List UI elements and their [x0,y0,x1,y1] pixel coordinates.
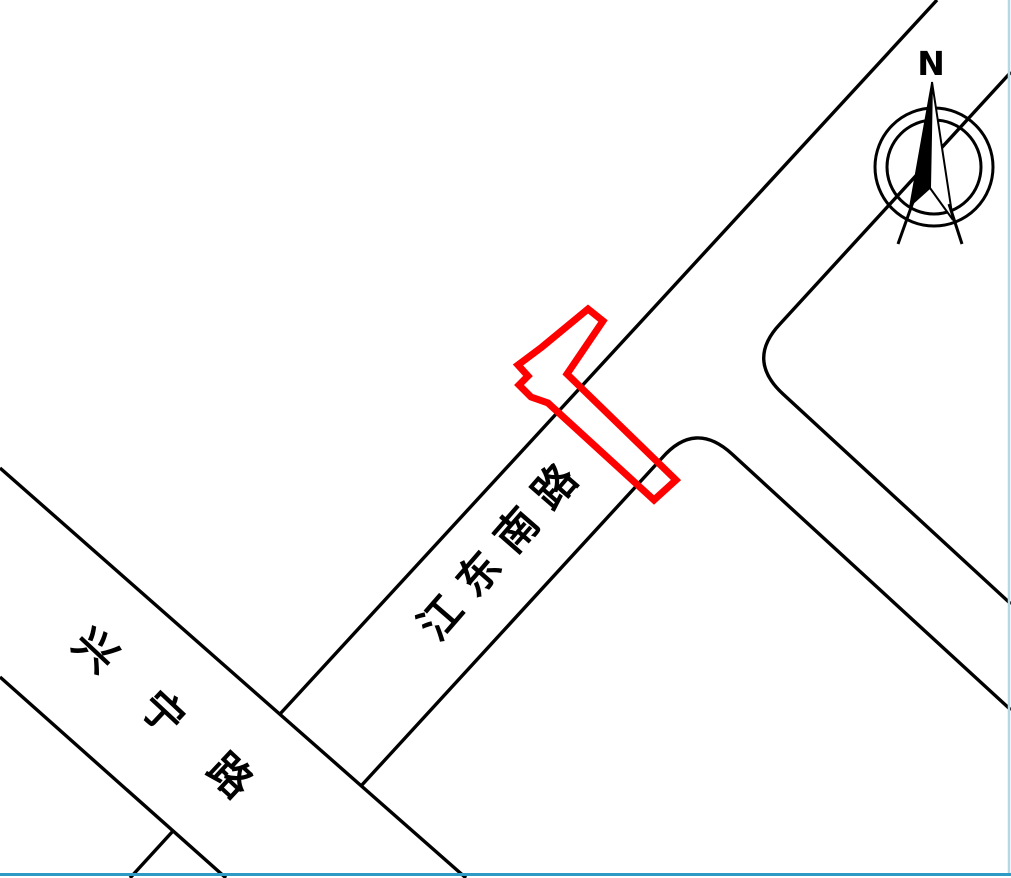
compass-needle-light-blade [930,82,953,220]
road-edge-jiangdong-se-upper-branch-ne [764,72,1011,604]
road-sketch-map: N 江东南路 兴宁路 [0,0,1011,878]
road-edge-jiangdong-nw [280,0,937,714]
road-edges [0,0,1011,878]
road-label-xingning-road: 兴宁路 [63,618,298,842]
road-edge-jiangdong-sw-extension [130,831,173,878]
map-canvas: N 江东南路 兴宁路 [0,0,1011,878]
compass-n-label: N [917,44,945,83]
north-arrow-compass: N [875,44,993,244]
road-edge-xingning-ne [0,468,466,878]
compass-needle-dark-blade [910,82,932,206]
compass-left-leg [898,202,913,244]
